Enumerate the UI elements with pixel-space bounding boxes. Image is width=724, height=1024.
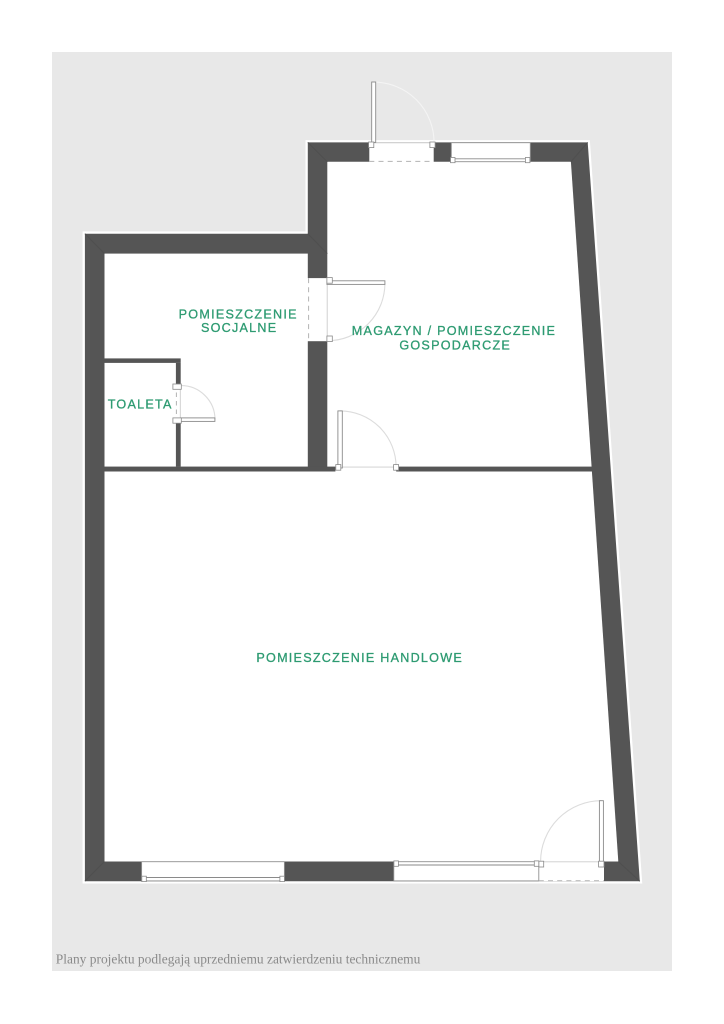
svg-text:SOCJALNE: SOCJALNE bbox=[201, 321, 278, 335]
svg-text:Plany projektu podlegają uprze: Plany projektu podlegają uprzedniemu zat… bbox=[56, 951, 421, 966]
svg-text:POMIESZCZENIE: POMIESZCZENIE bbox=[179, 307, 298, 321]
svg-text:GOSPODARCZE: GOSPODARCZE bbox=[399, 338, 511, 352]
svg-text:TOALETA: TOALETA bbox=[108, 397, 173, 411]
svg-text:MAGAZYN / POMIESZCZENIE: MAGAZYN / POMIESZCZENIE bbox=[352, 324, 556, 338]
svg-text:POMIESZCZENIE HANDLOWE: POMIESZCZENIE HANDLOWE bbox=[256, 651, 463, 665]
